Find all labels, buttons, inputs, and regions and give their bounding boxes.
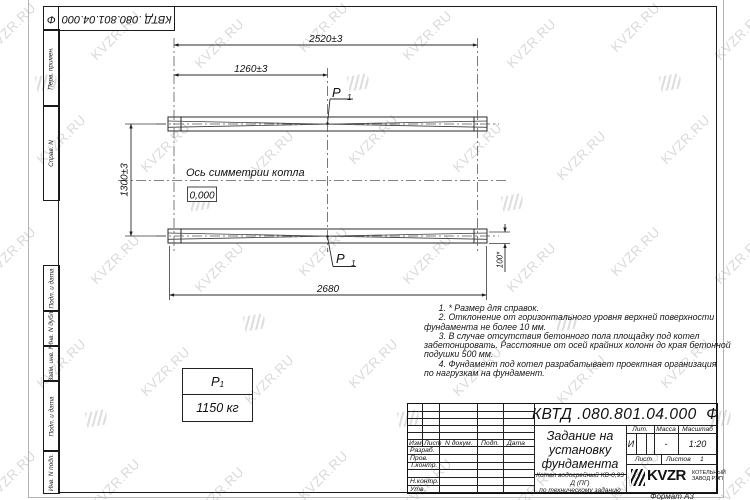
company-name: KVZR (647, 467, 686, 484)
tb-subtitle: Котел водогрейный КВ-0,93 Д (ПГ) по техн… (534, 474, 626, 493)
load-table-symbol: P1 (183, 369, 252, 394)
axis-lines (118, 38, 508, 252)
company-subtitle: КОТЕЛЬНЫЙ ЗАВОД РЭП (692, 470, 726, 482)
note-line: по нагрузкам на фундамент. (424, 369, 716, 378)
tb-doc-number: КВТД .080.801.04.000 Ф (534, 404, 717, 425)
tb-row-nkontr: Н.контр. (410, 478, 439, 485)
tb-row-tkontr: Т.контр. (410, 462, 437, 469)
tb-row-prov: Пров. (410, 455, 428, 462)
tb-lit-value: И (626, 433, 636, 454)
tb-row-utv: Утв. (410, 486, 425, 493)
tb-sheets-label: Листов (666, 456, 691, 463)
tb-title: Задание на установку фундамента (534, 425, 626, 474)
tb-mass-label: Масса (654, 425, 678, 433)
dim-vertical-label: 1300±3 (120, 163, 131, 197)
load-point-label-top: P 1 (332, 84, 352, 102)
tb-company: KVZR КОТЕЛЬНЫЙ ЗАВОД РЭП (626, 464, 717, 493)
tb-col-izm: Изм. (409, 440, 424, 447)
tb-scale-label: Масштаб (678, 425, 717, 433)
dim-half-label: 1260±3 (234, 64, 268, 75)
tb-scale-value: 1:20 (678, 433, 717, 454)
drawing-sheet: KVZR.RUKVZR.RUKVZR.RUKVZR.RUKVZR.RUKVZR.… (0, 0, 750, 500)
load-table: P1 1150 кг (182, 368, 253, 422)
kvzr-logo-icon (631, 469, 645, 486)
tb-row-razrab: Разраб. (410, 447, 435, 454)
load-table-value: 1150 кг (183, 395, 252, 421)
symmetry-axis-label: Ось симметрии котла (186, 167, 305, 179)
notes: 1. * Размер для справок. 2. Отклонение о… (424, 304, 716, 378)
title-block: Изм. Лист N докум. Подп. Дата Разраб. Пр… (407, 403, 718, 494)
dim-offset-label: 100* (496, 251, 505, 268)
format-note: Формат А3 (628, 492, 716, 500)
tb-sheet-label: Лист (626, 454, 661, 464)
load-point-label-bottom: P 1 (336, 250, 356, 268)
tb-col-list: Лист (424, 440, 442, 447)
tb-col-data: Дата (507, 440, 525, 447)
tb-col-podp: Подп. (481, 440, 499, 447)
tb-mass-value: - (654, 433, 678, 454)
dim-length-label: 2680 (316, 284, 340, 295)
tb-col-ndocum: N докум. (445, 440, 473, 447)
dimension-lines (125, 45, 510, 300)
tb-sheets-value: 1 (700, 456, 704, 463)
level-mark-value: 0,000 (189, 191, 214, 202)
dim-total-label: 2520±3 (308, 34, 343, 45)
tb-lit-label: Лит. (626, 425, 654, 433)
